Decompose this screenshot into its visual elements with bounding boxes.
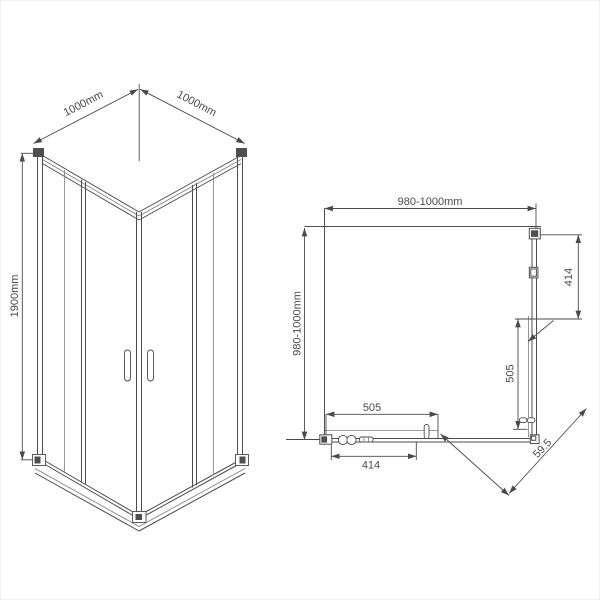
plan-width-label: 980-1000mm (398, 196, 463, 208)
plan-right-panel (519, 228, 540, 442)
iso-cabin-frame (33, 148, 249, 531)
iso-view: 1900mm 1000mm 1000mm (9, 84, 249, 531)
plan-dim-width-top: 980-1000mm (325, 196, 537, 229)
technical-drawing-canvas: 1900mm 1000mm 1000mm (0, 0, 600, 600)
plan-front-glass-label: 414 (362, 460, 380, 472)
plan-dim-side-door: 505 (505, 319, 528, 429)
plan-view: 980-1000mm 980-1000mm (286, 196, 587, 496)
plan-dim-depth-left: 980-1000mm (286, 228, 320, 440)
drawing-svg: 1900mm 1000mm 1000mm (1, 1, 600, 601)
iso-dim-width-left: 1000mm (34, 89, 139, 144)
plan-wall-edges (305, 209, 542, 436)
iso-dim-height: 1900mm (9, 153, 34, 460)
plan-side-fixed-label: 414 (563, 268, 575, 286)
iso-glass-edges (65, 170, 214, 488)
plan-bottom-door-handle (424, 425, 429, 439)
plan-door-roller (347, 435, 356, 444)
plan-side-door-label: 505 (505, 364, 517, 382)
iso-left-post (33, 148, 46, 466)
plan-front-door-label: 505 (363, 402, 381, 414)
iso-width-right-label: 1000mm (175, 89, 219, 119)
iso-width-left-label: 1000mm (62, 89, 106, 119)
plan-bottom-panel (320, 425, 539, 445)
plan-depth-label: 980-1000mm (292, 291, 304, 356)
plan-door-carriage (360, 437, 374, 442)
iso-right-door-handle (148, 350, 154, 381)
plan-entry-opening: 59.5 (441, 321, 587, 496)
iso-right-post (236, 148, 249, 466)
plan-right-door-handle (519, 418, 527, 423)
iso-height-label: 1900mm (9, 275, 21, 318)
iso-left-door-handle (125, 350, 131, 381)
plan-dim-front-glass: 414 (331, 443, 416, 472)
plan-dim-side-fixed: 414 (515, 235, 582, 319)
plan-dim-front-door: 505 (326, 402, 438, 439)
plan-door-roller (338, 435, 347, 444)
iso-front-post (133, 212, 147, 523)
iso-dim-width-right: 1000mm (140, 89, 245, 144)
